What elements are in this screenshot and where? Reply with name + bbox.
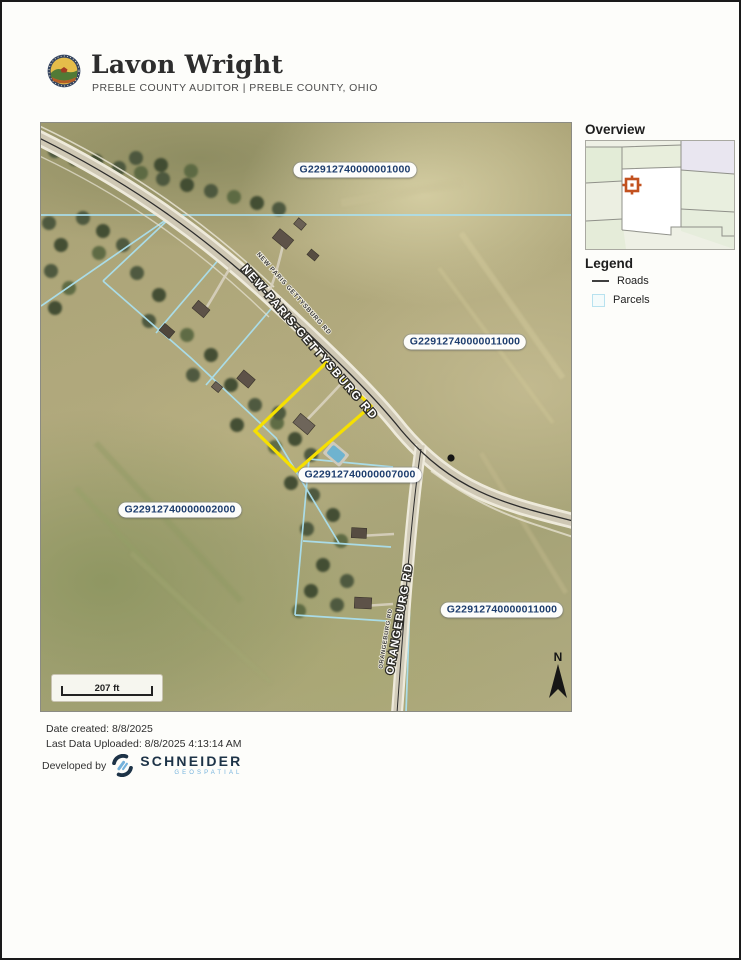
- main-road-label: NEW-PARIS-GETTYSBURG RD: [239, 263, 380, 422]
- svg-text:NEW-PARIS-GETTYSBURG RD: NEW-PARIS-GETTYSBURG RD: [239, 263, 380, 422]
- last-uploaded-text: Last Data Uploaded: 8/8/2025 4:13:14 AM: [46, 738, 242, 750]
- north-arrow: N: [541, 651, 572, 709]
- legend-item-label: Parcels: [613, 294, 650, 306]
- overview-title: Overview: [585, 122, 645, 137]
- legend-item-label: Roads: [617, 275, 649, 287]
- schneider-logo-icon: [111, 754, 134, 777]
- parcel-id-label-southeast: G22912740000011000: [441, 603, 563, 618]
- parcel-square-icon: [592, 294, 605, 307]
- parcel-id-label-north: G22912740000001000: [293, 163, 416, 178]
- overview-inset-map: [585, 140, 735, 250]
- north-arrow-icon: [545, 663, 571, 701]
- parcel-id-label-east: G22912740000011000: [404, 335, 526, 350]
- scale-bar-label: 207 ft: [52, 683, 162, 694]
- vendor-name: SCHNEIDER: [140, 755, 242, 768]
- county-seal-logo: [47, 54, 81, 88]
- auditor-subtitle: PREBLE COUNTY AUDITOR | PREBLE COUNTY, O…: [92, 82, 378, 94]
- north-arrow-label: N: [541, 651, 572, 663]
- roads: [41, 123, 572, 712]
- legend-item-roads: Roads: [592, 273, 649, 289]
- date-created-text: Date created: 8/8/2025: [46, 723, 153, 735]
- vendor-tagline: GEOSPATIAL: [140, 770, 242, 776]
- parcel-id-label-west: G22912740000002000: [118, 503, 241, 518]
- aerial-parcel-map: NEW PARIS GETTYSBURG RD NEW-PARIS-GETTYS…: [40, 122, 572, 712]
- developed-by-label: Developed by: [42, 760, 106, 772]
- legend-title: Legend: [585, 256, 633, 271]
- auditor-name: Lavon Wright: [91, 50, 283, 79]
- road-line-icon: [592, 280, 609, 282]
- road-intersection-node: [447, 454, 454, 461]
- printed-map-page: Lavon Wright PREBLE COUNTY AUDITOR | PRE…: [0, 0, 741, 960]
- parcel-id-label-center: G22912740000007000: [298, 468, 421, 483]
- selected-parcel-marker-icon: [623, 176, 642, 195]
- legend-item-parcels: Parcels: [592, 292, 650, 308]
- scale-bar: 207 ft: [51, 674, 163, 702]
- developer-credit: Developed by SCHNEIDER GEOSPATIAL: [42, 754, 242, 777]
